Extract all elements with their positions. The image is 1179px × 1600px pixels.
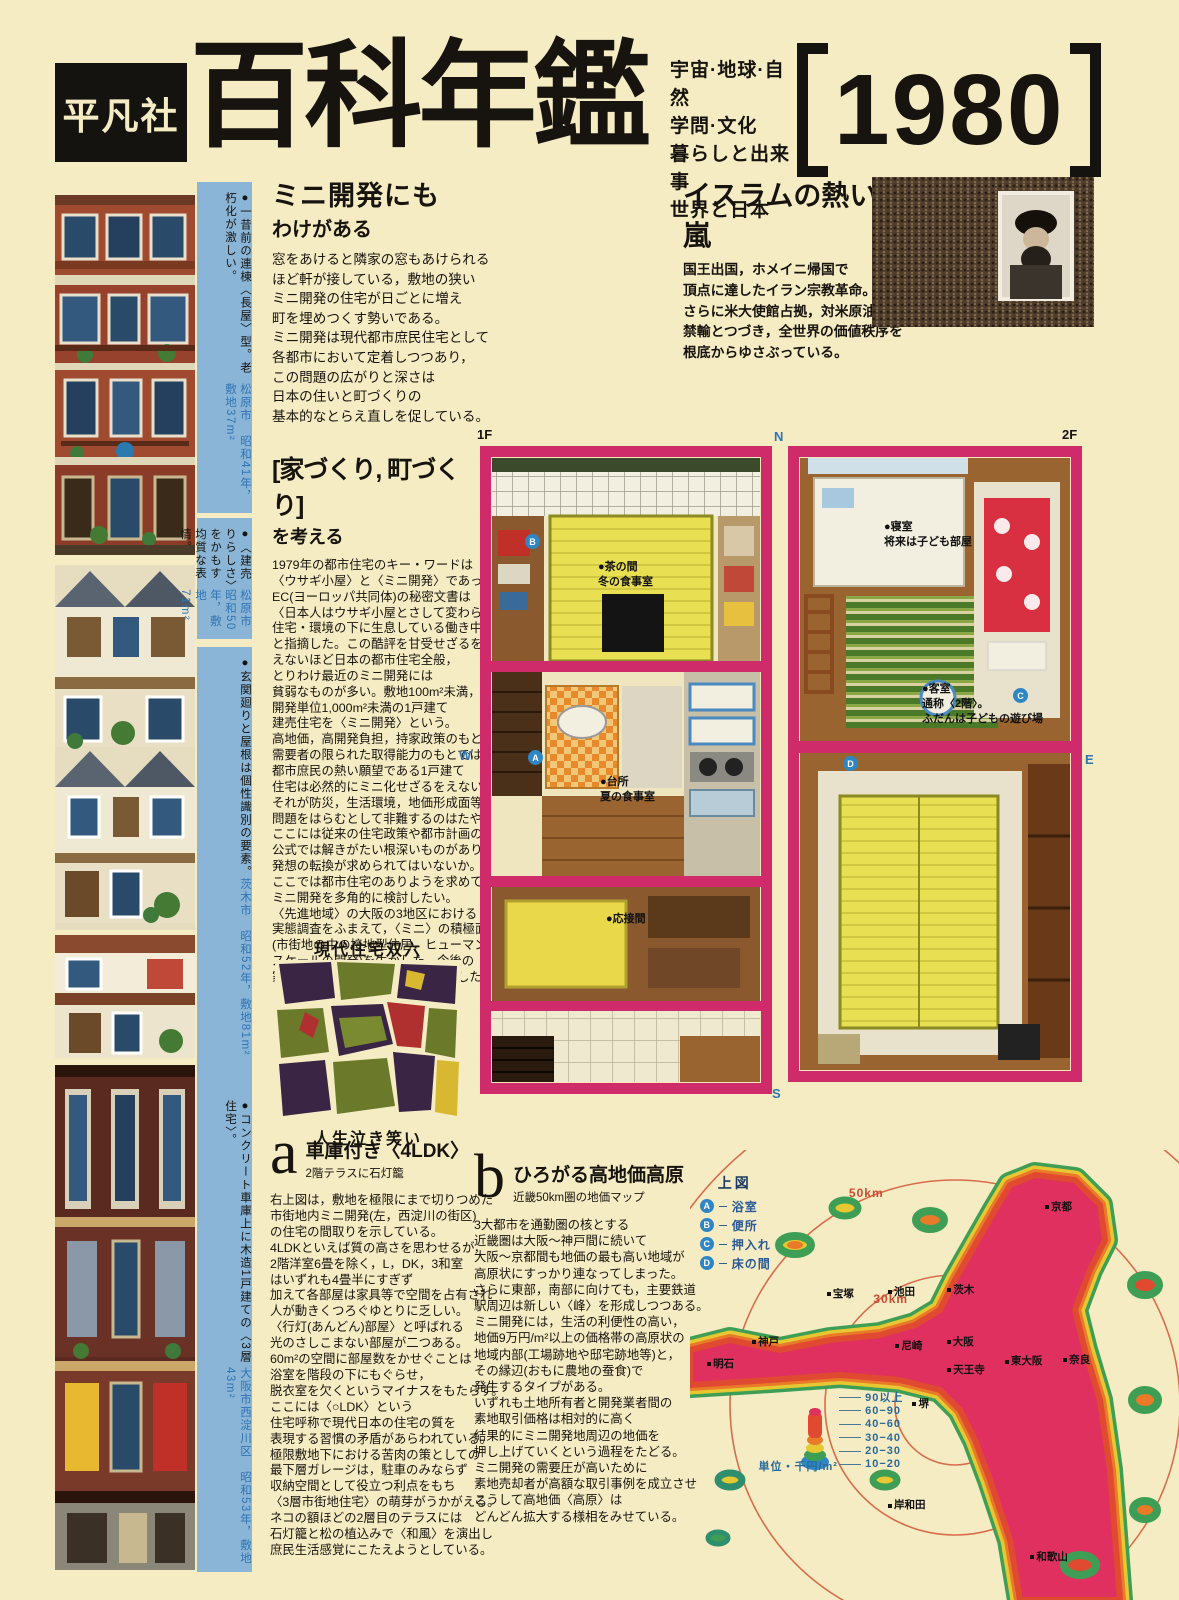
body-line: EC(ヨーロッパ共同体)の秘密文書は — [272, 590, 480, 606]
land-price-map: 上図 A 浴室 B 便所 C — [690, 1150, 1179, 1600]
article-mini-development: ミニ開発にも わけがある 窓をあけると隣家の窓もあけられるほど軒が接している，敷… — [272, 181, 477, 426]
legend-key-circle: D — [700, 1256, 714, 1270]
price-band-text: 30−40 — [865, 1432, 901, 1444]
body-line: ここには〈○LDK〉という — [270, 1400, 484, 1416]
body-line: 発想の転換が求められてはいないか。 — [272, 859, 480, 875]
legend-label: 浴室 — [732, 1198, 758, 1215]
body-line: それが防災，生活環境，地価形成面等の — [272, 796, 480, 812]
body-line: 建売住宅を〈ミニ開発〉という。 — [272, 716, 480, 732]
body-line: 基本的なとらえ直しを促している。 — [272, 407, 477, 427]
ring-distance-label: 50km — [849, 1186, 884, 1200]
photo-caption-strip: ●一昔前の連棟〈長屋〉型。老朽化が激しい。 松原市 昭和41年，敷地37m² ●… — [197, 182, 252, 1572]
section-body: 3大都市を通勤圏の核とする近畿圏は大阪〜神戸間に続いて大阪〜京都間も地価の最も高… — [474, 1217, 692, 1525]
legend-label: 押入れ — [732, 1236, 771, 1253]
price-band-item: 90以上 — [839, 1391, 903, 1404]
price-band-item: 40−60 — [839, 1418, 903, 1431]
legend-dash — [719, 1206, 727, 1207]
plan-marker-d: D — [843, 756, 858, 771]
body-line: ここには従来の住宅政策や都市計画の — [272, 827, 480, 843]
body-line: 極限敷地下における苦肉の策としての — [270, 1448, 484, 1464]
body-line: ほど軒が接している，敷地の狭い — [272, 270, 477, 290]
legend-item: C 押入れ — [700, 1235, 771, 1254]
floorplan-2f-label: 2F — [1062, 427, 1077, 442]
city-label: 茨木 — [947, 1282, 974, 1297]
city-label: 京都 — [1045, 1199, 1072, 1214]
article-body: 窓をあけると隣家の窓もあけられるほど軒が接している，敷地の狭いミニ開発の住宅が日… — [272, 250, 477, 426]
body-line: 押し上げていくという過程をたどる。 — [474, 1444, 692, 1460]
sugoroku-city-map — [275, 960, 461, 1120]
leader-line — [839, 1464, 861, 1465]
body-line: さらに米大使館占拠，対米原油 — [683, 302, 879, 323]
article-machizukuri: [家づくり, 町づくり] を考える 1979年の都市住宅のキー・ワードは〈ウサギ… — [272, 450, 480, 986]
photo-caption: ●玄関廻りと屋根は個性識別の要素。 茨木市 昭和52年，敷地81m² — [197, 647, 252, 1090]
photo-caption: ●コンクリート車庫上に木造1戸建ての〈3層住宅〉。 大阪市西淀川区 昭和53年，… — [197, 1090, 252, 1572]
body-line: ここでは都市住宅のありようを求めて — [272, 875, 480, 891]
body-line: どんどん拡大する様相をみせている。 — [474, 1509, 692, 1525]
page-title: 百科年鑑 — [190, 30, 680, 163]
map-room-legend: 上図 A 浴室 B 便所 C — [700, 1173, 771, 1273]
publisher-logo: 平凡社 — [55, 63, 187, 162]
price-band-item: 10−20 — [839, 1458, 903, 1471]
body-line: 地域内部(工場跡地や邸宅跡地等)と， — [474, 1347, 692, 1363]
price-band-item: 20−30 — [839, 1444, 903, 1457]
body-line: 公式では解きがたい根深いものがあり， — [272, 843, 480, 859]
body-line: 住宅は必然的にミニ化せざるをえない。 — [272, 780, 480, 796]
body-line: と指摘した。この酷評を甘受せざるを — [272, 637, 480, 653]
body-line: 脱衣室を欠くというマイナスをもたらす。 — [270, 1384, 484, 1400]
body-line: 1979年の都市住宅のキー・ワードは — [272, 558, 480, 574]
article-title: ミニ開発にも — [272, 181, 477, 211]
city-label: 岸和田 — [888, 1497, 926, 1512]
year-text: 1980 — [828, 60, 1070, 160]
article-subtitle: を考える — [272, 523, 480, 549]
price-band-item: 30−40 — [839, 1431, 903, 1444]
plan-marker-a: A — [528, 750, 543, 765]
body-line: 庶民生活感覚にこたえようとしている。 — [270, 1543, 484, 1559]
body-line: 〈3層市街地住宅〉の萌芽がうかがえる。 — [270, 1495, 484, 1511]
body-line: えないほど日本の都市住宅全般， — [272, 653, 480, 669]
article-islam: イスラムの熱い嵐 国王出国，ホメイニ帰国で頂点に達したイラン宗教革命。さらに米大… — [683, 174, 879, 364]
room-label-chanoma: ●茶の間 冬の食事室 — [598, 560, 653, 590]
body-line: 右上図は，敷地を極限にまで切りつめた — [270, 1193, 484, 1209]
body-line: 国王出国，ホメイニ帰国で — [683, 260, 879, 281]
body-line: ミニ開発の需要圧が高いために — [474, 1460, 692, 1476]
section-subtitle: 2階テラスに石灯籠 — [306, 1165, 470, 1181]
body-line: の住宅の間取りを示している。 — [270, 1225, 484, 1241]
body-line: ミニ開発を多角的に検討したい。 — [272, 891, 480, 907]
caption-meta: 茨木市 昭和52年，敷地81m² — [197, 878, 252, 1056]
body-line: 2階洋室6畳を除く，L，DK，3和室 — [270, 1257, 484, 1273]
body-line: 開発単位1,000m²未満の1戸建て — [272, 701, 480, 717]
legend-title: 上図 — [718, 1173, 771, 1193]
body-line: ミニ開発には，生活の利便性の高い， — [474, 1314, 692, 1330]
body-line: ミニ開発は現代都市庶民住宅として — [272, 328, 477, 348]
sugoroku-illustration-block: 現代住宅双六 人生泣き笑い — [274, 936, 462, 1149]
article-body: 1979年の都市住宅のキー・ワードは〈ウサギ小屋〉と〈ミニ開発〉であった。EC(… — [272, 558, 480, 986]
city-label: 池田 — [888, 1284, 915, 1299]
body-line: 収納空間として役立つ利点をもち — [270, 1479, 484, 1495]
legend-dash — [719, 1244, 727, 1245]
body-line: 都市庶民の熱い願望である1戸建て — [272, 764, 480, 780]
body-line: 高地価，高開発負担，持家政策のもと， — [272, 732, 480, 748]
city-label: 奈良 — [1063, 1352, 1090, 1367]
floorplan-1f — [480, 446, 772, 1094]
body-line: はいずれも4畳半にすぎず — [270, 1273, 484, 1289]
publisher-name: 平凡社 — [63, 86, 180, 140]
subtitle-line: 学問·文化 — [670, 113, 800, 141]
city-label: 東大阪 — [1005, 1353, 1043, 1368]
body-line: とりわけ最近のミニ開発には — [272, 669, 480, 685]
legend-item: D 床の間 — [700, 1254, 771, 1273]
section-title: 車庫付き〈4LDK〉 — [306, 1136, 470, 1163]
body-line: 発生するタイプがある。 — [474, 1379, 692, 1395]
city-label: 天王寺 — [947, 1362, 985, 1377]
section-b: b ひろがる高地価高原 近畿50km圏の地価マップ 3大都市を通勤圏の核とする近… — [474, 1152, 692, 1525]
year-banner: 1980 — [797, 50, 1101, 170]
body-line: 人が動きくつろぐゆとりに乏しい。 — [270, 1304, 484, 1320]
body-line: 〈行灯(あんどん)部屋〉と呼ばれる — [270, 1320, 484, 1336]
compass-east: E — [1085, 752, 1094, 767]
body-line: 〈先進地域〉の大阪の3地区における — [272, 907, 480, 923]
body-line: 市街地内ミニ開発(左，西淀川の街区) — [270, 1209, 484, 1225]
magazine-page: 平凡社 百科年鑑 宇宙·地球·自然学問·文化暮らしと出来事世界と日本 1980 — [0, 0, 1179, 1600]
body-line: さらに東部，南部に向けても，主要鉄道 — [474, 1282, 692, 1298]
price-band-legend: 90以上 60−90 40−60 30−40 — [839, 1391, 903, 1471]
leader-line — [839, 1397, 861, 1398]
three-story-house-illustration — [55, 1065, 195, 1570]
section-a: a 車庫付き〈4LDK〉 2階テラスに石灯籠 右上図は，敷地を極限にまで切りつめ… — [270, 1128, 484, 1559]
legend-item: B 便所 — [700, 1216, 771, 1235]
body-line: 60m²の空間に部屋数をかせぐことは — [270, 1352, 484, 1368]
body-line: 貧弱なものが多い。敷地100m²未満， — [272, 685, 480, 701]
body-line: 石灯籠と松の植込みで〈和風〉を演出し — [270, 1527, 484, 1543]
body-line: 近畿圏は大阪〜神戸間に続いて — [474, 1233, 692, 1249]
left-bracket — [797, 43, 828, 177]
leader-line — [839, 1424, 861, 1425]
legend-key-circle: A — [700, 1199, 714, 1213]
price-band-text: 60−90 — [865, 1405, 901, 1417]
caption-text: ●一昔前の連棟〈長屋〉型。老朽化が激しい。 — [197, 192, 252, 383]
room-label-daidokoro: ●台所 夏の食事室 — [600, 775, 655, 805]
body-line: 素地売却者が高額な取引事例を成立させ — [474, 1476, 692, 1492]
body-line: 日本の住いと町づくりの — [272, 387, 477, 407]
article-body: 国王出国，ホメイニ帰国で頂点に達したイラン宗教革命。さらに米大使館占拠，対米原油… — [683, 260, 879, 364]
body-line: 〈日本人はウサギ小屋とさして変わらぬ — [272, 606, 480, 622]
body-line: 最下層ガレージは，駐車のみならず — [270, 1463, 484, 1479]
body-line: 町を埋めつくす勢いである。 — [272, 309, 477, 329]
price-band-text: 10−20 — [865, 1458, 901, 1470]
city-label: 大阪 — [947, 1334, 974, 1349]
room-label-shinshitsu: ●寝室 将来は子ども部屋 — [884, 520, 972, 550]
sugoroku-title-top: 現代住宅双六 — [274, 936, 462, 960]
price-band-text: 40−60 — [865, 1418, 901, 1430]
section-body: 右上図は，敷地を極限にまで切りつめた市街地内ミニ開発(左，西淀川の街区)の住宅の… — [270, 1193, 484, 1559]
body-line: 光のさしこまない部屋が二つある。 — [270, 1336, 484, 1352]
body-line: 需要者の限られた取得能力のもとでは — [272, 748, 480, 764]
compass-west: W — [459, 748, 471, 763]
plan-marker-b: B — [525, 534, 540, 549]
detached-house-illustration — [55, 935, 195, 1058]
legend-label: 床の間 — [732, 1255, 771, 1272]
body-line: 浴室を階段の下にもぐらせ， — [270, 1368, 484, 1384]
body-line: 表現する習慣の矛盾があらわれている。 — [270, 1432, 484, 1448]
body-line: 高原状にすっかり連なってしまった。 — [474, 1266, 692, 1282]
iran-crowd-photo — [872, 177, 1094, 327]
rowhouse-illustration — [55, 195, 195, 555]
body-line: 問題をはらむとして非難するのはたやすい。 — [272, 812, 480, 828]
compass-north: N — [774, 429, 783, 444]
right-bracket — [1070, 43, 1101, 177]
caption-text: ●コンクリート車庫上に木造1戸建ての〈3層住宅〉。 — [197, 1100, 252, 1367]
room-label-ousetsuma: ●応接間 — [606, 912, 646, 927]
body-line: 根底からゆさぶっている。 — [683, 343, 879, 364]
caption-meta: 松原市 昭和50年，敷地71m² — [197, 589, 252, 633]
compass-south: S — [772, 1086, 781, 1101]
price-band-item: 60−90 — [839, 1404, 903, 1417]
section-letter: a — [270, 1128, 298, 1178]
body-line: その縁辺(おもに農地の蚕食)で — [474, 1363, 692, 1379]
body-line: 住宅呼称で現代日本の住宅の質を — [270, 1416, 484, 1432]
body-line: こうして高地価〈高原〉は — [474, 1492, 692, 1508]
gable-house-illustration — [55, 565, 195, 930]
legend-dash — [719, 1225, 727, 1226]
body-line: いずれも土地所有者と開発業者間の — [474, 1395, 692, 1411]
section-letter: b — [474, 1152, 505, 1202]
price-band-text: 20−30 — [865, 1445, 901, 1457]
city-label: 尼崎 — [895, 1338, 922, 1353]
legend-key-circle: B — [700, 1218, 714, 1232]
photo-caption: ●〈建売りらしさ〉をかもす均質な表情。 松原市 昭和50年，敷地71m² — [197, 518, 252, 639]
body-line: 3大都市を通勤圏の核とする — [474, 1217, 692, 1233]
caption-text: ●〈建売りらしさ〉をかもす均質な表情。 — [197, 528, 252, 589]
body-line: 禁輸とつづき，全世界の価値秩序を — [683, 322, 879, 343]
legend-dash — [719, 1263, 727, 1264]
floorplan-1f-label: 1F — [477, 427, 492, 442]
leader-line — [839, 1451, 861, 1452]
leader-line — [839, 1437, 861, 1438]
leader-line — [839, 1410, 861, 1411]
body-line: 大阪〜京都間も地価の最も高い地域が — [474, 1249, 692, 1265]
body-line: 素地取引価格は相対的に高く — [474, 1411, 692, 1427]
city-label: 宝塚 — [827, 1286, 854, 1301]
caption-meta: 大阪市西淀川区 昭和53年，敷地43m² — [197, 1367, 252, 1566]
body-line: 結果的にミニ開発地周辺の地価を — [474, 1428, 692, 1444]
article-title: イスラムの熱い嵐 — [683, 174, 879, 254]
city-label: 和歌山 — [1030, 1549, 1068, 1564]
legend-item: A 浴室 — [700, 1197, 771, 1216]
plan-marker-c: C — [1013, 688, 1028, 703]
city-label: 堺 — [912, 1396, 929, 1411]
body-line: 地価9万円/m²以上の価格帯の高原状の — [474, 1330, 692, 1346]
body-line: 〈ウサギ小屋〉と〈ミニ開発〉であった。 — [272, 574, 480, 590]
body-line: 頂点に達したイラン宗教革命。 — [683, 281, 879, 302]
legend-key-circle: C — [700, 1237, 714, 1251]
body-line: ネコの額ほどの2層目のテラスには — [270, 1511, 484, 1527]
body-line: 4LDKといえば質の高さを思わせるが， — [270, 1241, 484, 1257]
body-line: 駅周辺は新しい〈峰〉を形成しつつある。 — [474, 1298, 692, 1314]
body-line: 各都市において定着しつつあり， — [272, 348, 477, 368]
body-line: 加えて各部屋は家具等で空間を占有され — [270, 1288, 484, 1304]
section-title: ひろがる高地価高原 — [513, 1160, 684, 1187]
article-title: [家づくり, 町づくり] — [272, 450, 480, 522]
city-label: 明石 — [707, 1356, 734, 1371]
price-band-text: 90以上 — [865, 1389, 903, 1405]
body-line: 住宅・環境の下に生息している働き中毒〉 — [272, 621, 480, 637]
body-line: 窓をあけると隣家の窓もあけられる — [272, 250, 477, 270]
caption-meta: 松原市 昭和41年，敷地37m² — [197, 383, 252, 507]
subtitle-line: 宇宙·地球·自然 — [670, 57, 800, 113]
article-subtitle: わけがある — [272, 213, 477, 242]
section-subtitle: 近畿50km圏の地価マップ — [513, 1189, 684, 1205]
caption-text: ●玄関廻りと屋根は個性識別の要素。 — [197, 657, 252, 879]
legend-label: 便所 — [732, 1217, 758, 1234]
city-label: 神戸 — [752, 1334, 779, 1349]
body-line: ミニ開発の住宅が日ごとに増え — [272, 289, 477, 309]
price-unit-label: 単位・千円/m² — [758, 1458, 838, 1474]
body-line: この問題の広がりと深さは — [272, 368, 477, 388]
photo-caption: ●一昔前の連棟〈長屋〉型。老朽化が激しい。 松原市 昭和41年，敷地37m² — [197, 182, 252, 513]
